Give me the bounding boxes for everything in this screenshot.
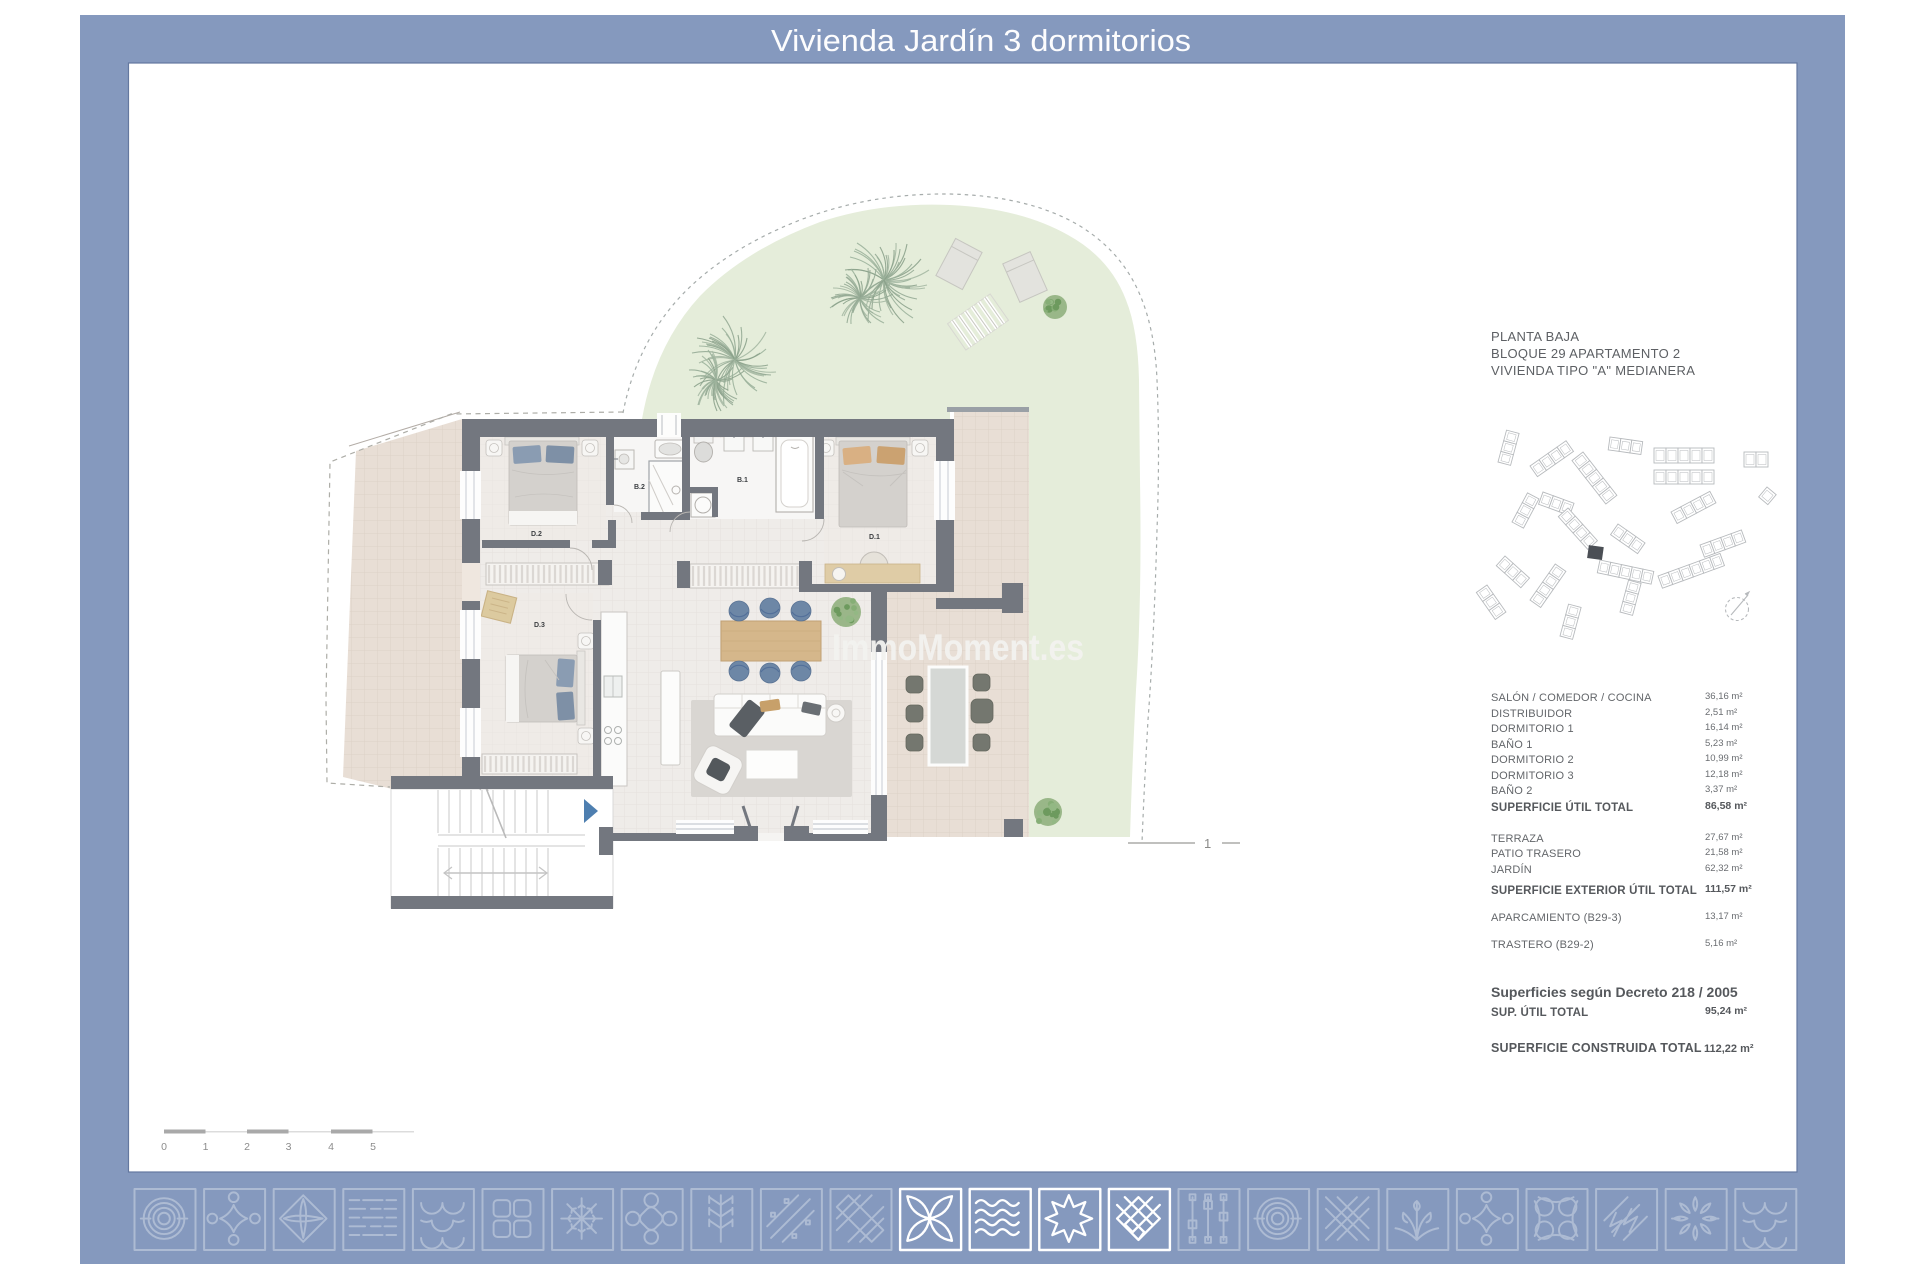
- svg-text:BLOQUE 29 APARTAMENTO 2: BLOQUE 29 APARTAMENTO 2: [1491, 346, 1680, 361]
- svg-text:TERRAZA: TERRAZA: [1491, 833, 1544, 845]
- svg-text:62,32 m²: 62,32 m²: [1705, 863, 1743, 874]
- svg-text:D.3: D.3: [534, 622, 545, 629]
- svg-text:Vivienda Jardín 3 dormitorios: Vivienda Jardín 3 dormitorios: [771, 24, 1191, 58]
- svg-text:TRASTERO (B29-2): TRASTERO (B29-2): [1491, 939, 1594, 951]
- svg-text:13,17 m²: 13,17 m²: [1705, 911, 1743, 922]
- svg-text:ImmoMoment.es: ImmoMoment.es: [832, 627, 1084, 668]
- svg-text:DORMITORIO 2: DORMITORIO 2: [1491, 754, 1574, 766]
- svg-text:112,22 m²: 112,22 m²: [1704, 1043, 1754, 1055]
- svg-text:5,16 m²: 5,16 m²: [1705, 938, 1737, 949]
- svg-text:1: 1: [203, 1141, 209, 1153]
- svg-text:1: 1: [1204, 836, 1211, 851]
- svg-text:2: 2: [244, 1141, 250, 1153]
- svg-text:3: 3: [286, 1141, 292, 1153]
- svg-text:JARDÍN: JARDÍN: [1491, 863, 1532, 876]
- svg-text:4: 4: [328, 1141, 334, 1153]
- svg-text:86,58 m²: 86,58 m²: [1705, 800, 1748, 812]
- svg-text:SUPERFICIE CONSTRUIDA TOTAL: SUPERFICIE CONSTRUIDA TOTAL: [1491, 1041, 1702, 1055]
- svg-text:D.2: D.2: [531, 531, 542, 538]
- svg-text:DORMITORIO 3: DORMITORIO 3: [1491, 770, 1574, 782]
- svg-text:95,24 m²: 95,24 m²: [1705, 1005, 1748, 1017]
- svg-text:APARCAMIENTO (B29-3): APARCAMIENTO (B29-3): [1491, 912, 1622, 924]
- svg-text:D.1: D.1: [869, 534, 880, 541]
- svg-text:DISTRIBUIDOR: DISTRIBUIDOR: [1491, 708, 1572, 720]
- svg-text:VIVIENDA TIPO "A" MEDIANERA: VIVIENDA TIPO "A" MEDIANERA: [1491, 363, 1695, 378]
- svg-text:B.2: B.2: [634, 484, 645, 491]
- svg-text:PLANTA BAJA: PLANTA BAJA: [1491, 329, 1579, 344]
- svg-text:12,18 m²: 12,18 m²: [1705, 769, 1743, 780]
- svg-text:3,37 m²: 3,37 m²: [1705, 784, 1737, 795]
- svg-text:Superficies según Decreto 218: Superficies según Decreto 218 / 2005: [1491, 984, 1738, 1000]
- svg-text:27,67 m²: 27,67 m²: [1705, 832, 1743, 843]
- svg-text:5: 5: [370, 1141, 376, 1153]
- svg-text:SUP. ÚTIL TOTAL: SUP. ÚTIL TOTAL: [1491, 1006, 1588, 1019]
- svg-text:36,16 m²: 36,16 m²: [1705, 691, 1743, 702]
- svg-text:16,14 m²: 16,14 m²: [1705, 722, 1743, 733]
- svg-text:B.1: B.1: [737, 477, 748, 484]
- svg-text:SALÓN / COMEDOR / COCINA: SALÓN / COMEDOR / COCINA: [1491, 691, 1652, 704]
- svg-text:0: 0: [161, 1141, 167, 1153]
- svg-text:PATIO TRASERO: PATIO TRASERO: [1491, 848, 1581, 860]
- svg-text:BAÑO 2: BAÑO 2: [1491, 784, 1533, 797]
- svg-text:111,57 m²: 111,57 m²: [1705, 883, 1752, 895]
- svg-text:DORMITORIO 1: DORMITORIO 1: [1491, 723, 1574, 735]
- svg-text:SUPERFICIE ÚTIL TOTAL: SUPERFICIE ÚTIL TOTAL: [1491, 801, 1633, 814]
- svg-text:5,23 m²: 5,23 m²: [1705, 738, 1737, 749]
- svg-text:21,58 m²: 21,58 m²: [1705, 847, 1743, 858]
- svg-text:BAÑO 1: BAÑO 1: [1491, 738, 1533, 751]
- svg-text:10,99 m²: 10,99 m²: [1705, 753, 1743, 764]
- svg-text:2,51 m²: 2,51 m²: [1705, 707, 1737, 718]
- svg-text:SUPERFICIE EXTERIOR ÚTIL TOTAL: SUPERFICIE EXTERIOR ÚTIL TOTAL: [1491, 884, 1697, 897]
